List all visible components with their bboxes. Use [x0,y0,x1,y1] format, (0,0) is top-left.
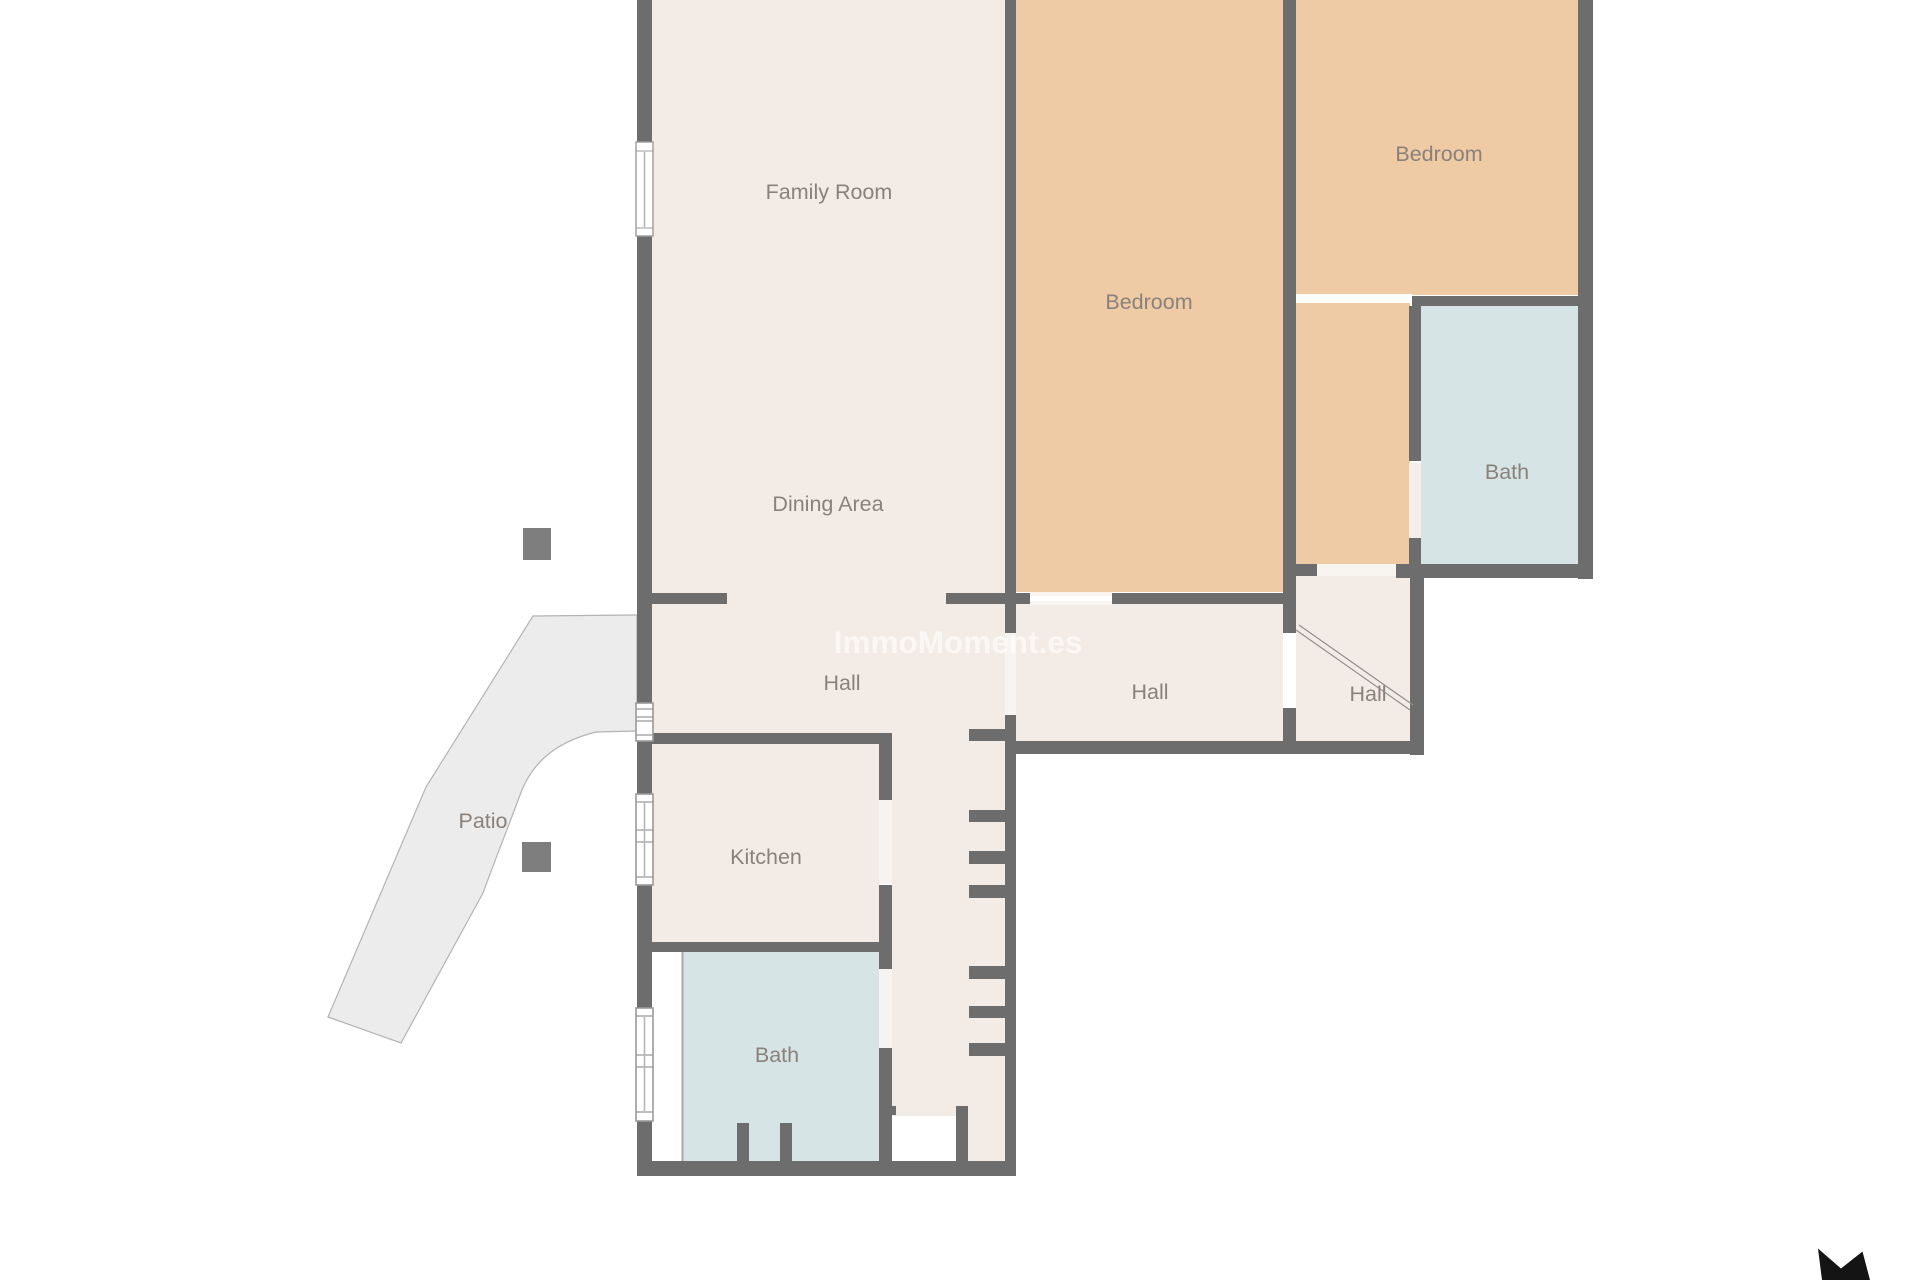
svg-text:Dining Area: Dining Area [772,492,883,516]
svg-text:Bedroom: Bedroom [1395,142,1482,166]
svg-text:Bath: Bath [1485,460,1529,484]
svg-text:Hall: Hall [1131,680,1168,704]
svg-text:Hall: Hall [823,671,860,695]
svg-text:Family Room: Family Room [766,180,893,204]
svg-text:Bath: Bath [755,1043,799,1067]
svg-text:Kitchen: Kitchen [730,845,802,869]
svg-text:Bedroom: Bedroom [1105,290,1192,314]
svg-text:Patio: Patio [458,809,507,833]
svg-text:ImmoMoment.es: ImmoMoment.es [834,624,1083,660]
svg-text:Hall: Hall [1349,682,1386,706]
